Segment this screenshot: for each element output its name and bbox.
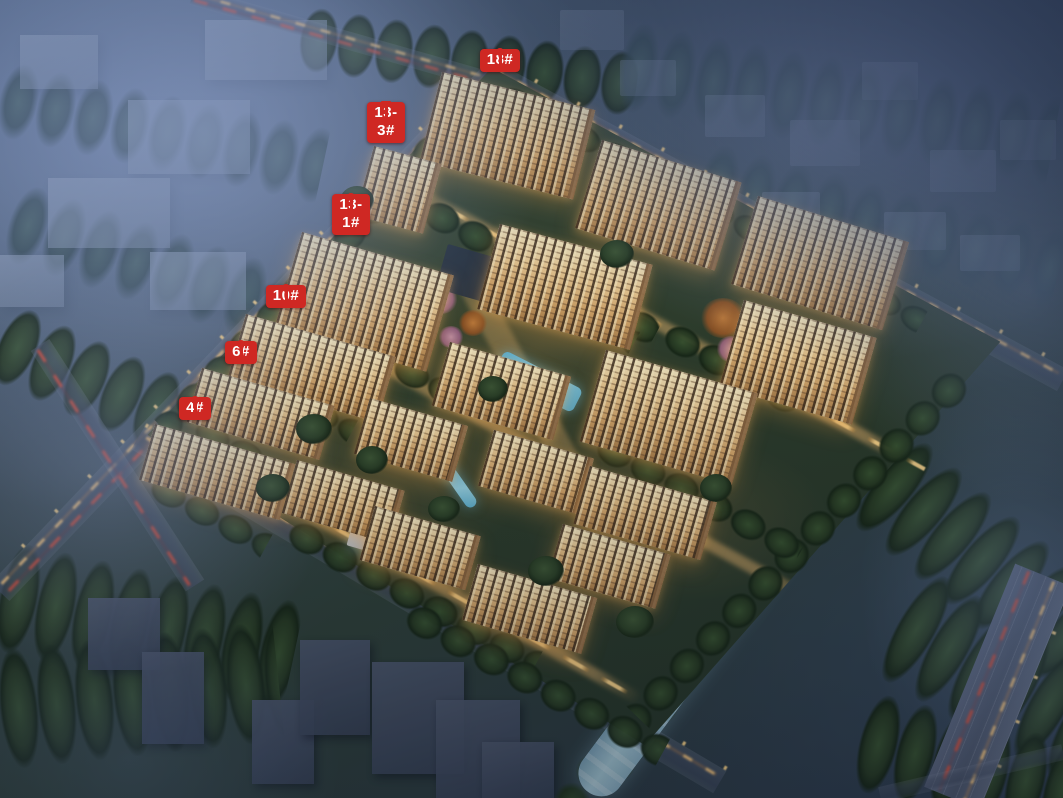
label-dot: [191, 396, 199, 404]
tree: [428, 496, 460, 522]
tree: [700, 474, 732, 502]
context-building: [128, 100, 250, 174]
tree: [256, 474, 290, 502]
label-arrowhead: [381, 101, 391, 110]
label-dot: [237, 340, 245, 348]
context-building: [20, 35, 98, 89]
tree: [616, 606, 654, 638]
tree: [528, 556, 564, 586]
context-house: [705, 95, 765, 137]
tree: [478, 376, 508, 402]
context-building: [150, 252, 246, 310]
context-building: [0, 255, 64, 307]
context-building-dark: [142, 652, 204, 744]
context-house: [790, 120, 860, 166]
label-dot: [496, 48, 504, 56]
context-building: [48, 178, 170, 248]
context-house: [960, 235, 1020, 271]
label-dot: [347, 193, 355, 201]
context-building-dark: [300, 640, 370, 735]
tree: [356, 446, 388, 474]
aerial-render: 18# 13-3# 13-1# 10# 6# 4#: [0, 0, 1063, 798]
context-house: [560, 10, 624, 50]
context-house: [620, 60, 676, 96]
context-house: [862, 62, 918, 100]
tree: [296, 414, 332, 444]
label-dot: [282, 284, 290, 292]
context-house: [930, 150, 996, 192]
tree: [600, 240, 634, 268]
context-house: [1000, 120, 1056, 160]
context-building-dark: [482, 742, 554, 798]
